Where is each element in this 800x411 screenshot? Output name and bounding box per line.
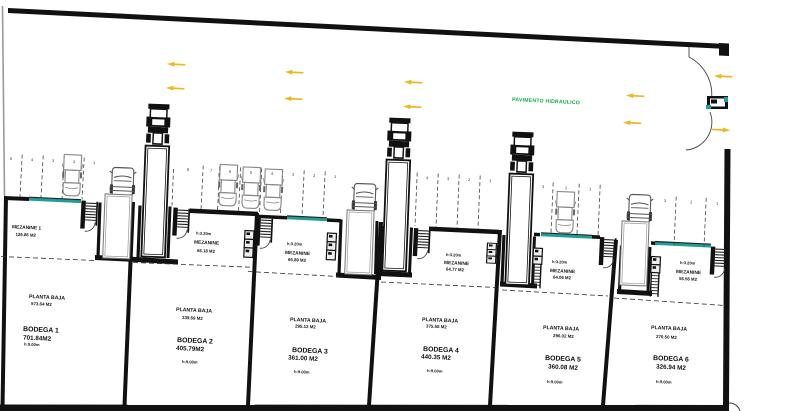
svg-text:3: 3	[292, 173, 294, 177]
svg-text:296.02 M2: 296.02 M2	[553, 333, 575, 339]
svg-text:326.94 M2: 326.94 M2	[656, 364, 687, 372]
svg-text:2: 2	[73, 160, 75, 164]
svg-text:375.58 M2: 375.58 M2	[426, 324, 448, 330]
svg-text:1: 1	[716, 202, 718, 206]
svg-text:h:9.00m: h:9.00m	[182, 359, 198, 365]
svg-text:64.77 M2: 64.77 M2	[446, 267, 465, 273]
svg-text:66.18 M2: 66.18 M2	[197, 248, 216, 254]
svg-text:1: 1	[93, 161, 95, 165]
svg-text:3: 3	[447, 177, 449, 181]
svg-text:4: 4	[426, 176, 428, 180]
svg-text:2: 2	[313, 174, 315, 178]
svg-text:7: 7	[210, 169, 212, 173]
svg-text:5: 5	[10, 157, 12, 161]
svg-text:h:9.00m: h:9.00m	[656, 379, 672, 385]
svg-text:2: 2	[690, 200, 692, 204]
svg-text:PLANTA BAJA: PLANTA BAJA	[543, 325, 580, 333]
svg-text:h:9.00m: h:9.00m	[547, 379, 563, 385]
svg-text:361.00 M2: 361.00 M2	[288, 355, 319, 363]
svg-text:1: 1	[489, 179, 491, 183]
svg-text:270.50 M2: 270.50 M2	[656, 334, 678, 340]
svg-text:PLANTA BAJA: PLANTA BAJA	[176, 307, 213, 315]
svg-text:8: 8	[187, 168, 189, 172]
svg-text:64.06 M2: 64.06 M2	[553, 275, 572, 281]
svg-text:56.56 M2: 56.56 M2	[679, 276, 698, 282]
svg-text:h:9.00m: h:9.00m	[294, 369, 310, 375]
svg-text:65.89 M2: 65.89 M2	[288, 257, 307, 263]
svg-text:BODEGA 5: BODEGA 5	[545, 355, 581, 364]
svg-text:h:3.20m: h:3.20m	[287, 241, 303, 247]
svg-text:h:9.00m: h:9.00m	[427, 368, 443, 374]
svg-text:339.69 M2: 339.69 M2	[182, 315, 204, 321]
svg-text:4: 4	[31, 158, 33, 162]
svg-text:h:9.00m: h:9.00m	[24, 342, 40, 348]
svg-text:6: 6	[229, 170, 231, 174]
svg-text:1: 1	[589, 187, 591, 191]
svg-text:BODEGA 6: BODEGA 6	[653, 355, 689, 364]
svg-text:h:3.20m: h:3.20m	[196, 231, 212, 237]
svg-text:MEZANINE: MEZANINE	[194, 240, 220, 247]
svg-text:295.12 M2: 295.12 M2	[295, 324, 317, 330]
svg-text:PAVIMENTO HIDRAULICO: PAVIMENTO HIDRAULICO	[512, 97, 580, 106]
svg-text:MEZANINE 1: MEZANINE 1	[12, 224, 42, 231]
svg-text:2: 2	[565, 186, 567, 190]
svg-text:PLANTA BAJA: PLANTA BAJA	[651, 325, 688, 333]
svg-text:2: 2	[468, 178, 470, 182]
svg-text:h:3.20m: h:3.20m	[680, 260, 696, 266]
svg-text:573.64 M2: 573.64 M2	[31, 301, 53, 307]
svg-text:5: 5	[250, 171, 252, 175]
svg-text:3: 3	[52, 159, 54, 163]
svg-text:4: 4	[271, 172, 273, 176]
svg-text:BODEGA 1: BODEGA 1	[23, 326, 59, 335]
svg-text:3: 3	[542, 185, 544, 189]
svg-text:440.35 M2: 440.35 M2	[421, 354, 452, 362]
svg-text:405.79M2: 405.79M2	[176, 345, 205, 353]
svg-text:3: 3	[664, 199, 666, 203]
svg-text:360.08 M2: 360.08 M2	[548, 364, 579, 372]
svg-text:h:3.20m: h:3.20m	[552, 259, 568, 265]
svg-text:126.86 M2: 126.86 M2	[15, 232, 36, 238]
svg-text:h:3.20m: h:3.20m	[446, 252, 462, 258]
svg-text:1: 1	[334, 175, 336, 179]
